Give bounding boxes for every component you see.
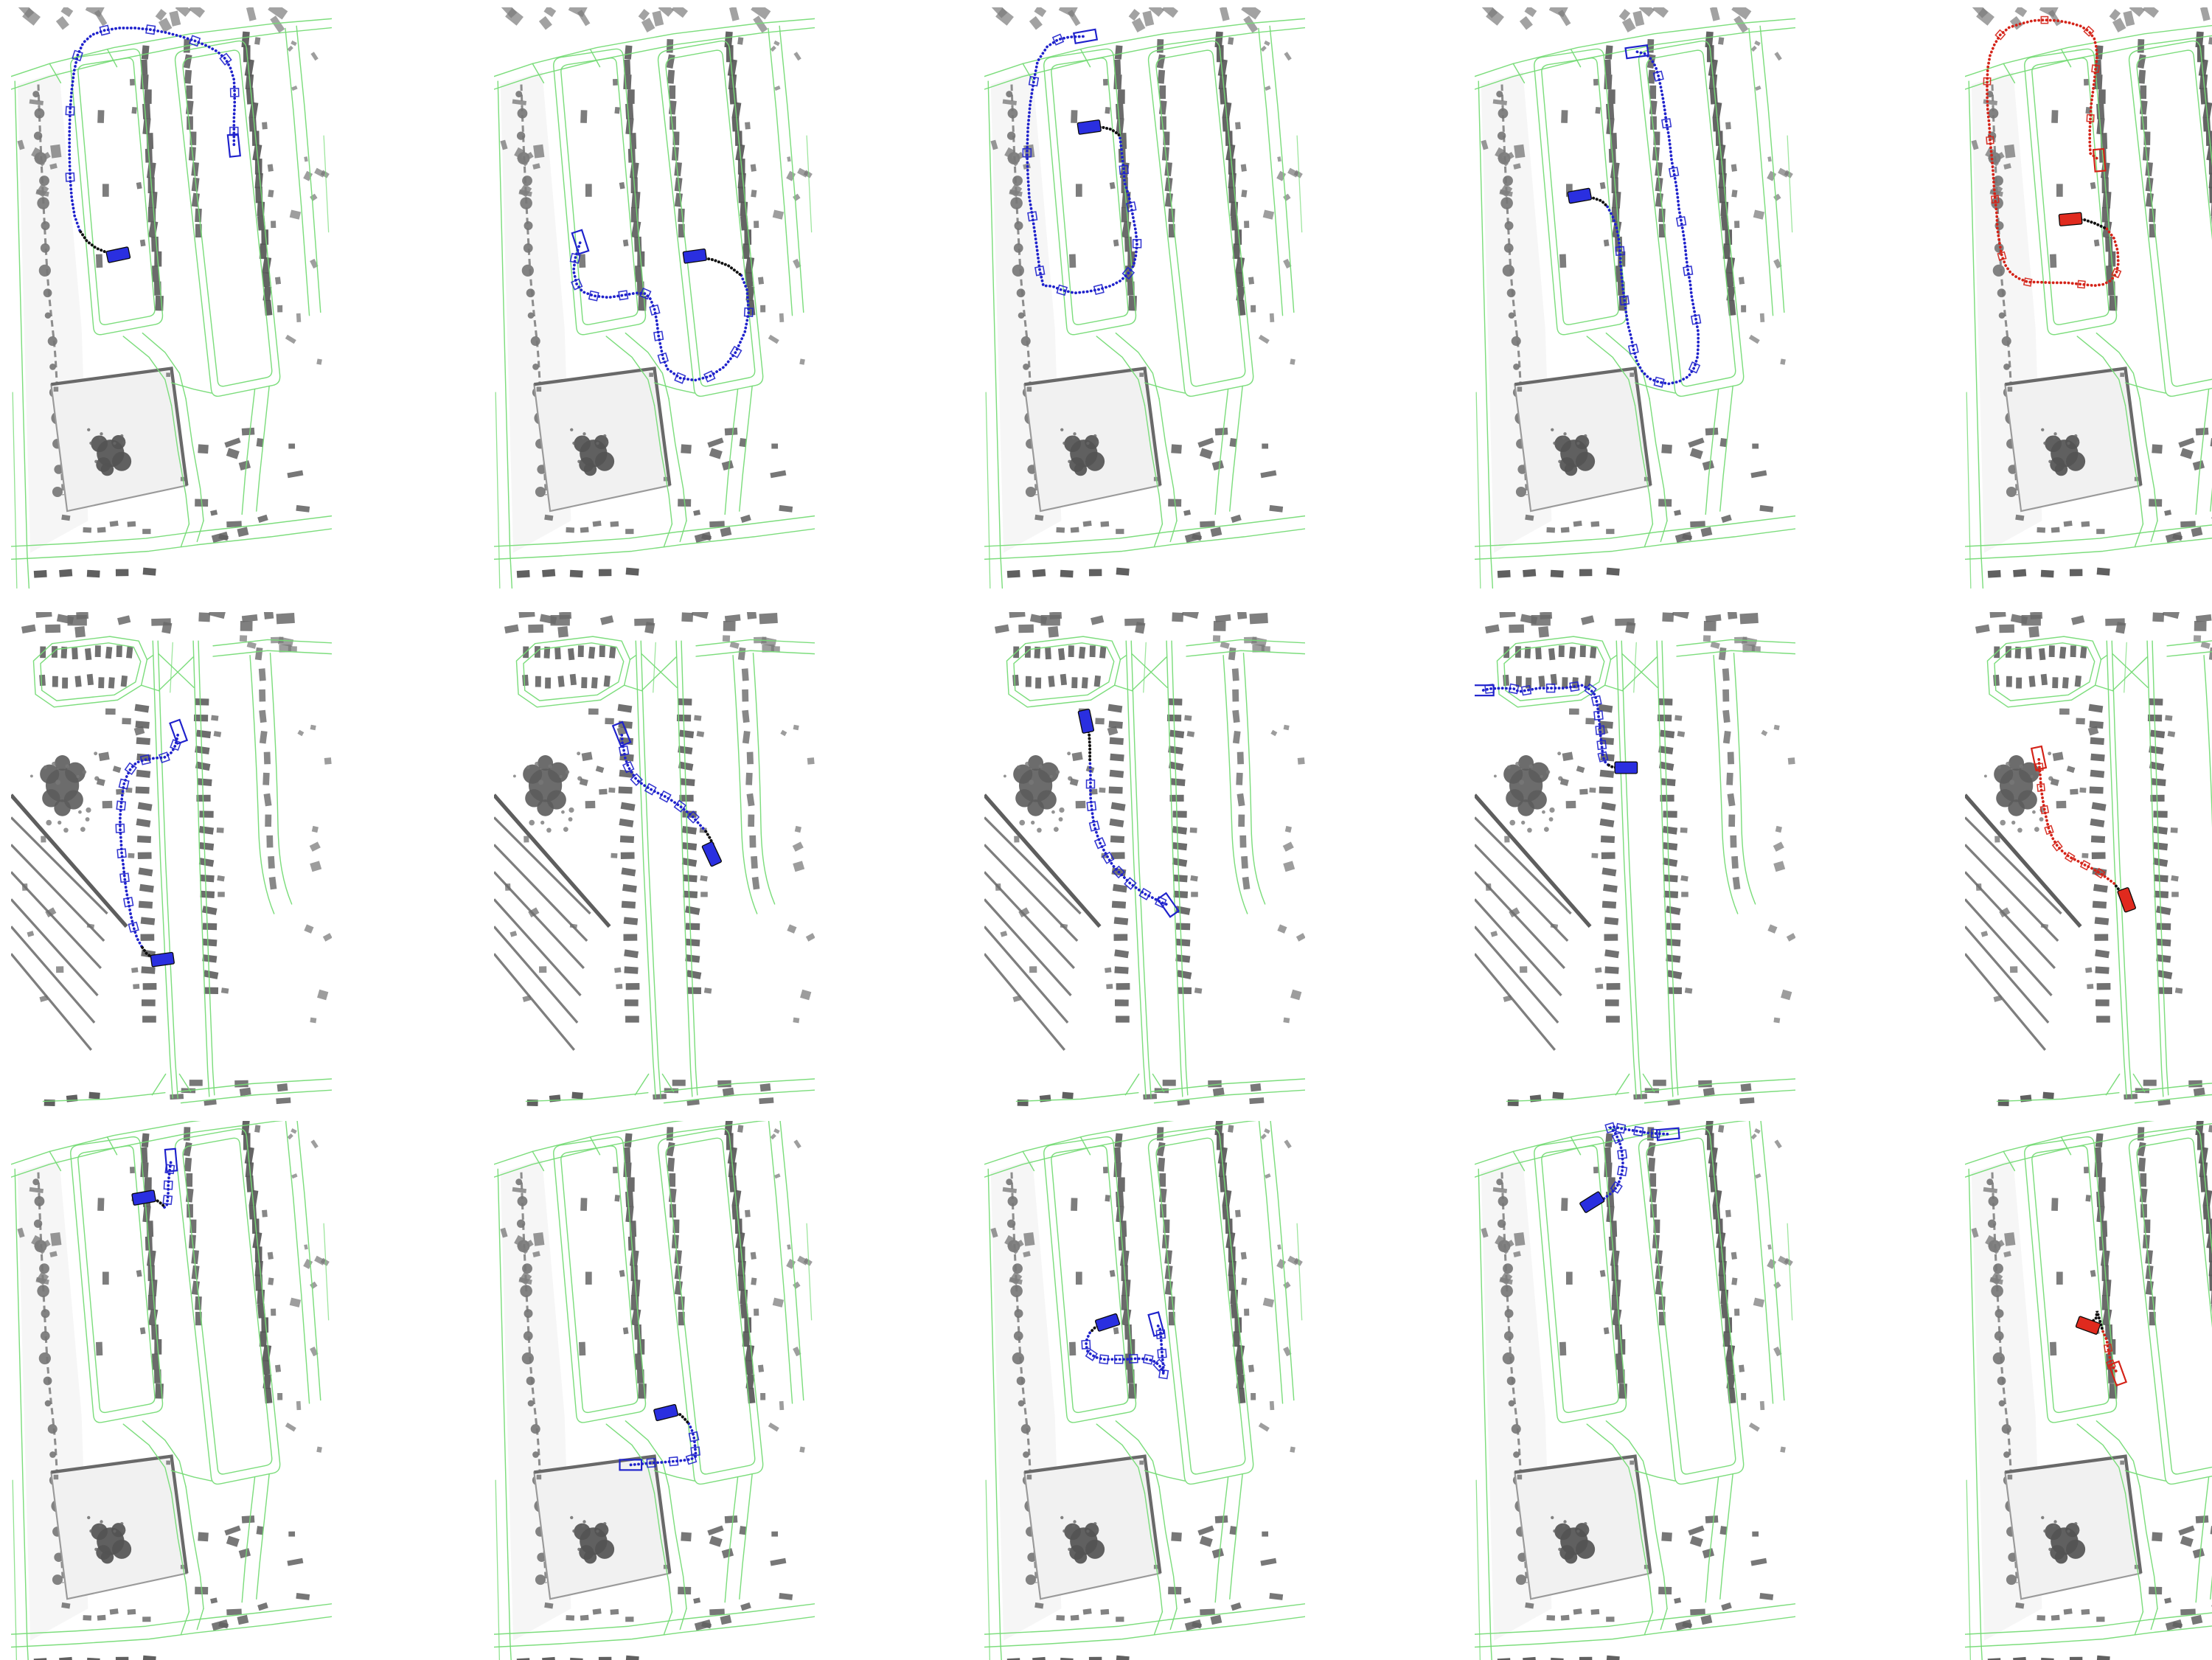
aerial-background [494,612,815,1106]
vehicle-box [106,247,131,263]
vehicle-box [150,952,174,967]
vehicle-box [132,1190,156,1206]
map-canvas [1475,612,1795,1106]
trajectory-path [164,1160,171,1207]
vehicle-box [683,249,706,263]
aerial-background [1965,1121,2212,1660]
map-canvas [494,612,815,1106]
vehicle-box [702,841,722,867]
map-panel-r2c2 [494,612,815,1106]
vehicle-box [1579,1191,1604,1212]
trajectory-layer [571,230,754,383]
aerial-background [1475,1121,1795,1660]
trajectory-marker [2045,826,2053,835]
aerial-background [11,7,332,588]
map-panel-r1c1 [11,7,332,591]
map-panel-r1c5 [1965,7,2212,591]
aerial-background [1475,7,1795,588]
map-canvas [984,1121,1305,1660]
map-panel-r3c5 [1965,1121,2212,1660]
trajectory-layer [2076,1311,2126,1386]
target-box [1074,29,1097,44]
vehicle-box [1615,762,1637,774]
figure-grid [0,0,2212,1659]
map-panel-r3c4 [1475,1121,1795,1660]
vehicle-box [653,1404,678,1421]
trajectory-path [1090,760,1168,905]
vehicle-box [2059,212,2082,226]
map-panel-r2c4 [1475,612,1795,1106]
map-panel-r1c2 [494,7,815,591]
map-canvas [984,612,1305,1106]
aerial-background [494,1121,815,1660]
trajectory-path [1483,685,1608,765]
map-canvas [1965,7,2212,591]
map-panel-r3c3 [984,1121,1305,1660]
vehicle-box [2118,887,2136,912]
map-canvas [1475,7,1795,591]
map-panel-r2c5 [1965,612,2212,1106]
aerial-background [494,7,815,588]
map-canvas [494,1121,815,1660]
map-canvas [1965,1121,2212,1660]
map-canvas [1965,612,2212,1106]
map-panel-r2c1 [11,612,332,1106]
vehicle-box [1077,120,1101,135]
map-canvas [494,7,815,591]
trajectory-layer [132,1149,178,1207]
trajectory-layer [1568,45,1701,387]
aerial-background [1965,612,2212,1106]
map-canvas [11,612,332,1106]
aerial-background [984,612,1305,1106]
trajectory-layer [620,1404,700,1470]
map-panel-r1c4 [1475,7,1795,591]
aerial-background [11,612,332,1106]
map-panel-r3c2 [494,1121,815,1660]
map-panel-r2c3 [984,612,1305,1106]
aerial-background [1475,612,1795,1106]
target-box [165,1149,177,1172]
map-canvas [1475,1121,1795,1660]
map-canvas [11,7,332,591]
trajectory-marker [2065,852,2075,862]
map-canvas [11,1121,332,1660]
map-panel-r3c1 [11,1121,332,1660]
map-panel-r1c3 [984,7,1305,591]
map-canvas [984,7,1305,591]
aerial-background [984,1121,1305,1660]
vehicle-box [1078,709,1094,733]
trajectory-layer [1078,709,1178,917]
aerial-background [1965,7,2212,588]
trajectory-layer [116,720,187,967]
